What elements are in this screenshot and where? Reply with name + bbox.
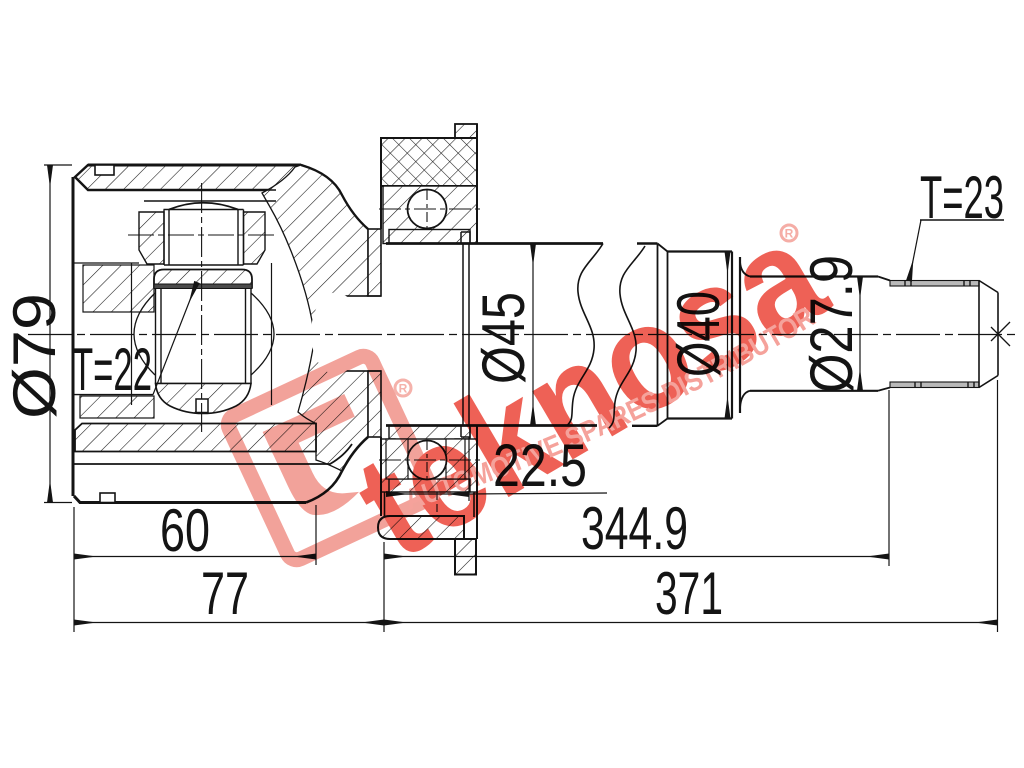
svg-text:344.9: 344.9 (581, 495, 688, 562)
svg-text:Ø79: Ø79 (1, 293, 68, 419)
svg-text:T=22: T=22 (72, 336, 152, 403)
svg-text:R: R (399, 382, 408, 396)
svg-text:60: 60 (160, 497, 210, 564)
svg-text:77: 77 (201, 560, 249, 627)
svg-text:371: 371 (655, 560, 723, 627)
svg-text:R: R (785, 227, 794, 241)
svg-text:T=23: T=23 (920, 164, 1004, 231)
